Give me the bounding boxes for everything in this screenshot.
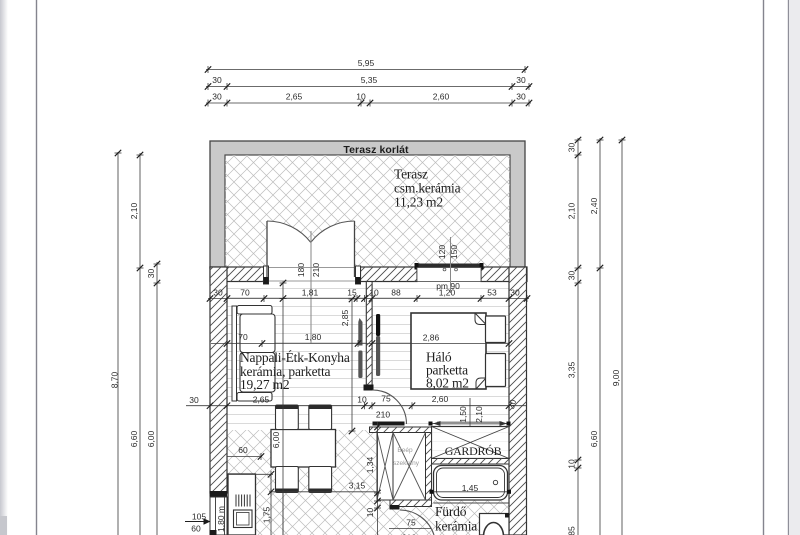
- svg-text:Fürdő: Fürdő: [435, 504, 467, 519]
- svg-text:1,81: 1,81: [302, 288, 319, 298]
- svg-text:szekrény: szekrény: [393, 460, 420, 467]
- svg-text:70: 70: [238, 332, 248, 342]
- svg-text:6,60: 6,60: [589, 430, 599, 447]
- svg-text:2,40: 2,40: [589, 197, 599, 214]
- svg-text:10: 10: [356, 92, 366, 102]
- svg-text:9,00: 9,00: [611, 369, 621, 386]
- svg-text:10: 10: [357, 395, 367, 405]
- svg-text:3,35: 3,35: [567, 361, 577, 378]
- svg-text:GARDRÓB: GARDRÓB: [445, 444, 502, 458]
- svg-text:1,80: 1,80: [305, 332, 322, 342]
- svg-text:30: 30: [213, 288, 223, 298]
- svg-text:53: 53: [487, 288, 497, 298]
- svg-text:30: 30: [567, 143, 577, 153]
- svg-text:180: 180: [296, 263, 306, 277]
- svg-text:15: 15: [347, 288, 357, 298]
- svg-text:8,02 m2: 8,02 m2: [426, 376, 469, 391]
- svg-text:30: 30: [567, 271, 577, 281]
- svg-text:2,10: 2,10: [567, 202, 577, 219]
- svg-text:Terasz: Terasz: [394, 167, 428, 182]
- svg-text:2,60: 2,60: [433, 92, 450, 102]
- svg-text:150: 150: [449, 245, 459, 259]
- svg-text:30: 30: [516, 75, 526, 85]
- svg-text:30: 30: [510, 288, 520, 298]
- svg-text:Nappali-Étk-Konyha: Nappali-Étk-Konyha: [240, 350, 350, 365]
- svg-text:210: 210: [376, 410, 390, 420]
- svg-text:1,34: 1,34: [365, 456, 375, 473]
- svg-text:60: 60: [238, 445, 248, 455]
- svg-text:2,65: 2,65: [286, 92, 303, 102]
- svg-text:1,75: 1,75: [262, 506, 272, 523]
- svg-text:2,10: 2,10: [474, 406, 484, 423]
- svg-text:2,10: 2,10: [129, 202, 139, 219]
- svg-text:2,85: 2,85: [340, 309, 350, 326]
- svg-text:30: 30: [516, 92, 526, 102]
- svg-text:70: 70: [240, 288, 250, 298]
- svg-text:120: 120: [437, 245, 447, 259]
- svg-text:10: 10: [567, 459, 577, 469]
- svg-text:8,70: 8,70: [110, 371, 120, 388]
- svg-text:2,86: 2,86: [423, 333, 440, 343]
- svg-text:6,00: 6,00: [146, 430, 156, 447]
- svg-text:1,50: 1,50: [458, 406, 468, 423]
- svg-text:kerámia: kerámia: [435, 519, 477, 534]
- svg-text:19,27 m2: 19,27 m2: [240, 377, 289, 392]
- svg-text:5,35: 5,35: [361, 75, 378, 85]
- svg-text:5,95: 5,95: [358, 58, 375, 68]
- svg-text:30: 30: [212, 92, 222, 102]
- svg-text:3,15: 3,15: [349, 481, 366, 491]
- svg-text:11,23 m2: 11,23 m2: [394, 195, 443, 210]
- svg-text:2,60: 2,60: [432, 394, 449, 404]
- svg-text:1,80 m: 1,80 m: [216, 506, 226, 532]
- svg-text:6,60: 6,60: [129, 430, 139, 447]
- svg-text:88: 88: [391, 288, 401, 298]
- svg-text:csm.kerámia: csm.kerámia: [394, 181, 461, 196]
- svg-text:Beép: Beép: [397, 447, 413, 454]
- svg-text:10: 10: [369, 288, 379, 298]
- svg-text:60: 60: [191, 524, 201, 534]
- svg-text:6,00: 6,00: [271, 431, 281, 448]
- svg-text:2,65: 2,65: [253, 395, 270, 405]
- svg-text:10: 10: [365, 508, 375, 518]
- svg-text:75: 75: [406, 518, 416, 528]
- svg-text:85: 85: [567, 526, 577, 535]
- svg-text:30: 30: [212, 75, 222, 85]
- svg-text:Terasz korlát: Terasz korlát: [343, 144, 409, 156]
- svg-text:30: 30: [146, 269, 156, 279]
- svg-text:30: 30: [189, 395, 199, 405]
- svg-text:210: 210: [311, 263, 321, 277]
- svg-text:1,20: 1,20: [439, 288, 456, 298]
